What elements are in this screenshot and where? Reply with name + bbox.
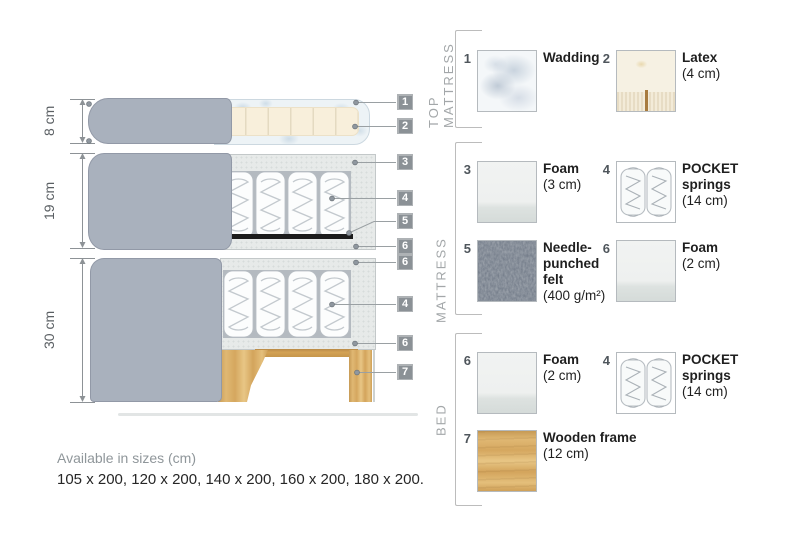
- felt-texture: [478, 241, 536, 301]
- top-mattress-cross-section: [214, 99, 370, 145]
- frame-edge-line: [373, 350, 375, 402]
- item-name: Wadding: [543, 50, 600, 66]
- mattress-fabric: [88, 153, 232, 250]
- bed-pocket-springs: [223, 270, 351, 338]
- dimension-label-19cm: 19 cm: [40, 153, 58, 248]
- wood-left-post: [218, 350, 268, 402]
- bed-fabric: [90, 258, 222, 402]
- item-size: (12 cm): [543, 446, 637, 462]
- top-mattress-fabric: [88, 98, 232, 144]
- layer-tag-6c: 6: [397, 335, 413, 351]
- pocket-spring-icon: [319, 270, 350, 338]
- mattress-pocket-springs: [223, 171, 351, 239]
- wood-swatch: [477, 430, 537, 492]
- section-label-bed: BED: [431, 372, 451, 468]
- felt-swatch: [477, 240, 537, 302]
- pocket-spring-icon: [255, 171, 286, 239]
- wood-right-leg: [349, 350, 372, 402]
- section-label-top-mattress: TOP MATTRESS: [431, 32, 451, 128]
- layer-tag-7: 7: [397, 364, 413, 380]
- item-number: 6: [596, 240, 610, 256]
- item-number: 6: [457, 352, 471, 368]
- section-label-mattress: MATTRESS: [431, 232, 451, 328]
- layer-tag-3: 3: [397, 154, 413, 170]
- pocket-spring-icon: [223, 270, 254, 338]
- item-size: (2 cm): [682, 256, 720, 272]
- legend-item-needle-punched-felt: 5 Needle- punched felt (400 g/m²): [457, 240, 605, 304]
- item-number: 3: [457, 161, 471, 177]
- bed-cross-section: [220, 258, 376, 350]
- foam-swatch: [616, 240, 676, 302]
- pocket-spring-icon: [287, 171, 318, 239]
- item-name: POCKET springs: [682, 352, 738, 384]
- layer-tag-6b: 6: [397, 254, 413, 270]
- item-number: 1: [457, 50, 471, 66]
- dimension-label-30cm: 30 cm: [40, 258, 58, 402]
- item-name: POCKET springs: [682, 161, 738, 193]
- legend-item-latex: 2 Latex (4 cm): [596, 50, 720, 112]
- layer-tag-1: 1: [397, 94, 413, 110]
- pocket-springs-icon: [617, 162, 675, 222]
- latex-layer: [223, 107, 359, 136]
- item-name: Foam: [543, 161, 581, 177]
- item-size: (14 cm): [682, 193, 738, 209]
- dimension-label-8cm: 8 cm: [40, 99, 58, 143]
- legend-item-foam-3cm: 3 Foam (3 cm): [457, 161, 581, 223]
- latex-drip: [645, 90, 648, 111]
- item-size: (2 cm): [543, 368, 581, 384]
- legend-item-bed-pocket-springs: 4 POCKET springs (14 cm): [596, 352, 738, 414]
- wood-rail: [255, 349, 358, 357]
- pocket-spring-icon: [287, 270, 318, 338]
- item-number: 7: [457, 430, 471, 446]
- pocket-springs-swatch: [616, 352, 676, 414]
- item-number: 5: [457, 240, 471, 256]
- item-name: Foam: [543, 352, 581, 368]
- legend-item-foam-2cm: 6 Foam (2 cm): [596, 240, 720, 302]
- wadding-swatch: [477, 50, 537, 112]
- available-sizes-values: 105 x 200, 120 x 200, 140 x 200, 160 x 2…: [57, 469, 424, 491]
- legend-item-pocket-springs: 4 POCKET springs (14 cm): [596, 161, 738, 223]
- bed-construction-infographic: 8 cm 19 cm 30 cm 1 2 3 4 5 6 6 4 6 7 TOP…: [0, 0, 800, 533]
- pocket-springs-swatch: [616, 161, 676, 223]
- available-sizes-title: Available in sizes (cm): [57, 448, 424, 469]
- foam-swatch: [477, 352, 537, 414]
- bed-shadow: [118, 413, 418, 416]
- layer-tag-6a: 6: [397, 238, 413, 254]
- available-sizes: Available in sizes (cm) 105 x 200, 120 x…: [57, 448, 424, 491]
- pocket-spring-icon: [319, 171, 350, 239]
- item-name: Latex: [682, 50, 720, 66]
- legend-item-bed-foam: 6 Foam (2 cm): [457, 352, 581, 414]
- item-size: (14 cm): [682, 384, 738, 400]
- item-name: Foam: [682, 240, 720, 256]
- latex-swatch: [616, 50, 676, 112]
- item-number: 4: [596, 161, 610, 177]
- pocket-springs-icon: [617, 353, 675, 413]
- needle-punched-felt-layer: [223, 234, 353, 239]
- legend-item-wadding: 1 Wadding: [457, 50, 600, 112]
- layer-tag-4: 4: [397, 190, 413, 206]
- item-name: Wooden frame: [543, 430, 637, 446]
- item-number: 2: [596, 50, 610, 66]
- foam-swatch: [477, 161, 537, 223]
- item-number: 4: [596, 352, 610, 368]
- layer-tag-2: 2: [397, 118, 413, 134]
- mattress-cross-section: [218, 154, 376, 250]
- pocket-spring-icon: [255, 270, 286, 338]
- item-size: (4 cm): [682, 66, 720, 82]
- dimension-arrowheads: [80, 99, 86, 402]
- layer-tag-5: 5: [397, 213, 413, 229]
- layer-tag-4b: 4: [397, 296, 413, 312]
- item-size: (3 cm): [543, 177, 581, 193]
- legend-item-wooden-frame: 7 Wooden frame (12 cm): [457, 430, 637, 492]
